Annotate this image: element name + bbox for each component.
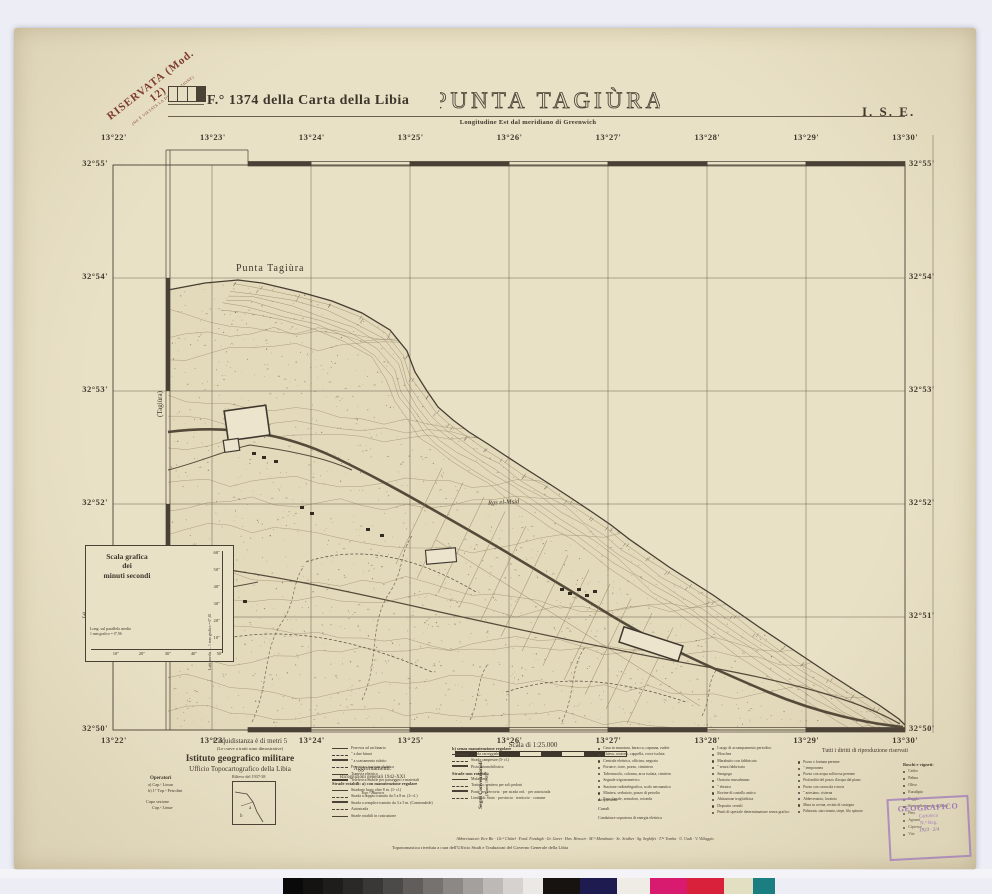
legend-powerlines: Condutture sopraterra di energia elettri… <box>598 816 662 820</box>
legend-entry-text: Abitazione trogloditica <box>717 797 753 802</box>
legend-entry-text: Olivo <box>908 783 917 789</box>
legend-point-symbol <box>798 811 800 813</box>
longitude-label: 13°22' <box>101 132 127 142</box>
latitude-label: 32°54' <box>909 271 941 281</box>
punta-tagiura-label: Punta Tagiùra <box>236 263 305 274</box>
legend-entry: ″ a scartamento ridotto <box>332 759 419 764</box>
legend-entry: Sinagoga <box>712 772 789 777</box>
legend-entry-text: Mulattiera <box>471 777 487 782</box>
legend-entry-text: Eucalipto <box>908 790 923 796</box>
legend-point-symbol <box>712 812 714 814</box>
legend-line-symbol <box>452 761 468 762</box>
latitude-label: 32°51' <box>909 610 941 620</box>
legend-point-symbol <box>712 760 714 762</box>
legend-unroads-title: Strade non rotabili: <box>452 771 489 776</box>
legend-point-symbol <box>598 748 600 750</box>
header-rule <box>168 116 905 117</box>
longitude-label: 13°24' <box>299 132 325 142</box>
legend-point-symbol <box>598 786 600 788</box>
legend-tree-symbol <box>903 771 905 773</box>
legend-entry: Cedro <box>903 769 948 775</box>
legend-tree-symbol <box>903 792 905 794</box>
legend-line-symbol <box>332 767 348 768</box>
legend-entry-text: Autostrada <box>351 807 368 812</box>
legend-entry-text: ″ temporanea <box>803 766 823 771</box>
index-cell <box>188 87 197 101</box>
scale-tick: 20" <box>139 651 145 656</box>
scale-tick: 40" <box>206 584 220 589</box>
legend-line-symbol <box>332 797 348 798</box>
legend-point-symbol <box>712 748 714 750</box>
legend-entry: ″ ebraico <box>712 785 789 790</box>
legend-entry: Palizzata, staccionata, siepe, filo spin… <box>798 809 863 814</box>
legend-roads-b-title: b) senza manutenzione regolare <box>452 746 511 751</box>
legend-entry: Strada carreggiabile (4ᵃ cl.) <box>452 752 514 757</box>
legend-roads-a: Stradone largo oltre 8 m. (1ᵃ cl.)Strada… <box>332 788 433 820</box>
legend-entry: Oratorio musulmano <box>712 778 789 783</box>
legend-entry: Marabutto con fabbricato <box>712 759 789 764</box>
legend-point-symbol <box>598 792 600 794</box>
calibration-gray-step <box>483 878 503 894</box>
svg-text:b: b <box>240 814 243 819</box>
legend-entry-text: ″ a due binari <box>351 752 372 757</box>
legend-entry: Abitazione trogloditica <box>712 797 789 802</box>
legend-entry: Ferrovia a trazione elettrica <box>332 765 419 770</box>
legend-woods-title: Boschi e vigneti: <box>903 762 934 767</box>
legend-entry: Abbeveratoio, lavatoio <box>798 797 863 802</box>
equidistance-note: L'equidistanza è di metri 5 <box>160 737 340 745</box>
legend-entry-text: Limiti di: Stato · provincia · territori… <box>471 796 545 801</box>
equidistance-subnote: (Le curve a tratti sono dimostrative) <box>160 746 340 751</box>
survey-date-label: Rilievo del 1937-38 <box>232 774 266 779</box>
legend-entry: Mura in rovina, recinti di sostegno <box>798 803 863 808</box>
calibration-gray-step <box>363 878 383 894</box>
legend-point-symbol <box>798 774 800 776</box>
legend-line-symbol <box>332 801 348 805</box>
longitude-label: 13°28' <box>695 132 721 142</box>
longitude-label: 13°26' <box>497 132 523 142</box>
legend-entry-text: Strada carreggiabile (4ᵃ cl.) <box>471 752 514 757</box>
legend-entry: Pozzo con carrucola e noria <box>798 785 863 790</box>
legend-entry: ″ senza fabbricato <box>712 765 789 770</box>
longitude-scale-label-1: Long. sul parallelo medio <box>90 626 131 631</box>
legend-point-symbol <box>712 805 714 807</box>
longitude-label: 13°22' <box>101 735 127 745</box>
legend-point-symbol <box>798 761 800 763</box>
sheet-reference: F.° 1374 della Carta della Libia <box>207 93 409 109</box>
legend-point-symbol <box>712 773 714 775</box>
legend-entry: Eucalipto <box>903 790 948 796</box>
legend-point-symbol <box>712 799 714 801</box>
legend-entry-text: Pozzo con acqua solforosa perenne <box>803 772 855 777</box>
institute-name: Istituto geografico militare <box>140 754 340 764</box>
legend-buildings: Casa in muratura, baracca, capanna, rude… <box>598 746 671 804</box>
legend-entry: Tramvia elettrica <box>332 772 419 777</box>
legend-entry: Strade rotabili in costruzione <box>332 814 433 819</box>
legend-entry-text: Ferrovia ad un binario <box>351 746 386 751</box>
calibration-gray-step <box>403 878 423 894</box>
scale-tick: 30" <box>165 651 171 656</box>
sheet-index-diagram <box>168 86 206 102</box>
legend-entry-text: Strada a semplice transito da 3 a 5 m. (… <box>351 801 433 806</box>
land-area <box>168 280 905 730</box>
scale-tick: 60" <box>206 550 220 555</box>
legend-tree-symbol <box>903 778 905 780</box>
legend-entry: Stradone largo oltre 8 m. (1ᵃ cl.) <box>332 788 433 793</box>
section-head-title: Capo sezione <box>146 799 169 804</box>
longitude-scale-ruler <box>91 649 223 650</box>
legend-entry: Deposito cereali <box>712 804 789 809</box>
index-cell <box>169 87 178 101</box>
legend-entry-text: Chiesa, oratorio, cappella, croce isolat… <box>603 752 664 757</box>
legend-line-symbol <box>332 816 348 817</box>
legend-line-symbol <box>332 755 348 756</box>
legend-entry-text: Sinagoga <box>717 772 731 777</box>
legend-entry: Casa in muratura, baracca, capanna, rude… <box>598 746 671 751</box>
legend-line-symbol <box>332 748 348 749</box>
legend-point-symbol <box>712 754 714 756</box>
legend-railways: Ferrovia ad un binario″ a due binari″ a … <box>332 746 419 785</box>
legend-entry: Fornace, torre, pozzo, ciminiera <box>598 765 671 770</box>
legend-entry-text: Ponti: per ferrovia · per strada ord. · … <box>471 790 550 795</box>
legend-entry: Olivo <box>903 783 948 789</box>
legend-entry-text: Moschea <box>717 752 731 757</box>
svg-text:a: a <box>249 806 252 811</box>
legend-entry-text: Stradone largo oltre 8 m. (1ᵃ cl.) <box>351 788 401 793</box>
legend-line-symbol <box>452 798 468 799</box>
legend-entry-text: Centrale elettrica, officina, negozio <box>603 759 658 764</box>
latitude-label: 32°53' <box>76 384 108 394</box>
legend-entry-text: ″ senza fabbricato <box>717 765 745 770</box>
longitude-label: 13°30' <box>892 132 918 142</box>
legend-entry-text: Profondità del pozzo d'acqua dal piano <box>803 778 860 783</box>
longitude-label: 13°27' <box>596 132 622 142</box>
legend-entry-text: ″ a scartamento ridotto <box>351 759 386 764</box>
abbreviations-line: Abbreviazioni: B.re Bir · Ch.ᵉᵗ Châtel ·… <box>300 836 870 841</box>
legend-line-symbol <box>452 786 468 787</box>
adjoining-sheet-label: (Tagiùra) <box>156 384 164 424</box>
latitude-label: 32°50' <box>909 723 941 733</box>
scale-tick: 50" <box>206 567 220 572</box>
scale-tick: 40" <box>191 651 197 656</box>
legend-entry-text: Tratturo, sentiero per soli pedoni <box>471 783 522 788</box>
legend-entry: Strada a semplice transito da 3 a 5 m. (… <box>332 801 433 806</box>
legend-entry: Pozzo con acqua solforosa perenne <box>798 772 863 777</box>
legend-entry-text: Strada a doppio transito da 5 a 8 m. (2ᵃ… <box>351 794 418 799</box>
calibration-color-patch <box>580 878 617 894</box>
calibration-gray-step <box>383 878 403 894</box>
legend-entry-text: Palma <box>908 776 918 782</box>
longitude-note: Longitudine Est dal meridiano di Greenwi… <box>408 119 648 126</box>
photo-mat-band <box>0 869 992 878</box>
legend-point-symbol <box>712 767 714 769</box>
operator-entry: b) 1° Top.ᵒ Petrolini <box>148 788 182 794</box>
scale-tick: 10" <box>113 651 119 656</box>
scale-title-3: minuti secondi <box>92 571 162 580</box>
fort-annex <box>223 438 240 452</box>
legend-entry-text: Segnale trigonometrico <box>603 778 639 783</box>
fort-enclosure <box>224 405 270 441</box>
photo-background: { "colors": { "photo_bg": "#edeef5", "pa… <box>0 0 992 894</box>
legend-entry-text: Pozzo o fontana perenne <box>803 760 839 765</box>
calibration-gray-step <box>443 878 463 894</box>
legend-entry: Ponti: per ferrovia · per strada ord. · … <box>452 790 550 795</box>
calibration-gray-step <box>323 878 343 894</box>
legend-entry: Pista automobilistica <box>452 765 514 770</box>
legend-point-symbol <box>798 786 800 788</box>
latitude-label: 32°53' <box>909 384 941 394</box>
calibration-gray-step <box>503 878 523 894</box>
legend-entry: Strada campestre (5ᵃ cl.) <box>452 758 514 763</box>
index-cell-current <box>197 87 205 101</box>
latitude-label: 32°54' <box>76 271 108 281</box>
legend-entry: Pozzo o fontana perenne <box>798 760 863 765</box>
legend-entry-text: Oratorio musulmano <box>717 778 749 783</box>
copyright-note: Tutti i diritti di riproduzione riservat… <box>770 748 960 754</box>
legend-entry: Tabernacolo, colonna, arca isolata, cimi… <box>598 772 671 777</box>
legend-entry-text: Marabutto con fabbricato <box>717 759 757 764</box>
scale-tick: 50" <box>217 651 223 656</box>
calibration-gray-step <box>343 878 363 894</box>
legend-point-symbol <box>712 780 714 782</box>
scale-tick: 10" <box>206 635 220 640</box>
legend-entry-text: Abbeveratoio, lavatoio <box>803 797 837 802</box>
library-stamp: GEOGRAFICO Cartoteca N.° Reg. 1923 · 2/4 <box>886 795 971 861</box>
legend-point-symbol <box>598 760 600 762</box>
survey-diagram: a b <box>232 781 276 825</box>
legend-entry-text: Tabernacolo, colonna, arca isolata, cimi… <box>603 772 671 777</box>
legend-point-symbol <box>598 773 600 775</box>
calibration-gray-step <box>523 878 543 894</box>
latitude-scale-ruler <box>222 551 223 653</box>
latitude-label: 32°55' <box>76 158 108 168</box>
legend-entry: Mulattiera <box>452 777 550 782</box>
calibration-strip <box>283 878 775 894</box>
legend-line-symbol <box>452 779 468 780</box>
legend-entry: Autostrada <box>332 807 433 812</box>
index-cell <box>178 87 187 101</box>
longitude-scale-label-2: 1 mm grafico = 0",96 <box>90 632 122 636</box>
index-diagram-scale <box>168 101 204 105</box>
legend-roads-b: Strada carreggiabile (4ᵃ cl.)Strada camp… <box>452 752 514 771</box>
longitude-label: 13°28' <box>695 735 721 745</box>
legend-entry-text: Rovine di castello antico <box>717 791 756 796</box>
legend-entry: Stazione radiotelegrafica, scalo aeronau… <box>598 785 671 790</box>
legend-entry: Punti di speciale determinazione senza g… <box>712 810 789 815</box>
scale-tick: 20" <box>206 618 220 623</box>
calibration-gray-step <box>283 878 303 894</box>
longitude-label: 13°25' <box>398 132 424 142</box>
scale-title-2: dei <box>92 561 162 570</box>
graphic-scale-title: Scala grafica dei minuti secondi <box>92 552 162 580</box>
legend-point-symbol <box>598 780 600 782</box>
longitude-label: 13°23' <box>200 132 226 142</box>
latitude-label: 32°50' <box>76 723 108 733</box>
legend-entry-text: Pozzo con carrucola e noria <box>803 785 844 790</box>
legend-point-symbol <box>798 804 800 806</box>
legend-line-symbol <box>332 809 348 810</box>
legend-entry-text: Luogo di accampamento periodico <box>717 746 771 751</box>
legend-aqueducts: Acquedotti <box>598 797 618 802</box>
scale-title-1: Scala grafica <box>92 552 162 561</box>
legend-line-symbol <box>452 765 468 769</box>
legend-line-symbol <box>332 774 348 775</box>
survey-diagram-sketch: a b <box>233 782 275 824</box>
calibration-color-patch <box>687 878 724 894</box>
legend-entry-text: Ferrovia a trazione elettrica <box>351 765 394 770</box>
latitude-label: 32°52' <box>909 497 941 507</box>
calibration-gray-step <box>423 878 443 894</box>
legend-tree-symbol <box>903 785 905 787</box>
legend-entry: Rovine di castello antico <box>712 791 789 796</box>
legend-entry: Strada a doppio transito da 5 a 8 m. (2ᵃ… <box>332 794 433 799</box>
legend-entry-text: Strada campestre (5ᵃ cl.) <box>471 758 509 763</box>
legend-cult-sites: Luogo di accampamento periodicoMoscheaMa… <box>712 746 789 817</box>
calibration-gray-step <box>463 878 483 894</box>
legend-entry-text: Stazione radiotelegrafica, scalo aeronau… <box>603 785 671 790</box>
legend-line-symbol <box>332 759 348 763</box>
legend-point-symbol <box>712 792 714 794</box>
legend-point-symbol <box>598 754 600 756</box>
legend-entry: Profondità del pozzo d'acqua dal piano <box>798 778 863 783</box>
latitude-scale-label: Latit. media — 1 mm grafico = 0",81 <box>208 644 212 670</box>
legend-entry: Segnale trigonometrico <box>598 778 671 783</box>
graphic-scale-box: Scala grafica dei minuti secondi Latit. … <box>85 545 234 662</box>
legend-line-symbol <box>332 790 348 791</box>
legend-entry-text: Mura in rovina, recinti di sostegno <box>803 803 854 808</box>
longitude-label: 13°30' <box>892 735 918 745</box>
legend-canals: Canali <box>598 806 609 811</box>
legend-entry-text: Palizzata, staccionata, siepe, filo spin… <box>803 809 863 814</box>
legend-roads-a-title: Strade rotabili: a) con manutenzione reg… <box>332 781 417 786</box>
legend-unroads: MulattieraTratturo, sentiero per soli pe… <box>452 777 550 803</box>
legend-entry: Tratturo, sentiero per soli pedoni <box>452 783 550 788</box>
legend-entry-text: Cedro <box>908 769 918 775</box>
legend-entry: Limiti di: Stato · provincia · territori… <box>452 796 550 801</box>
legend-entry: Chiesa, oratorio, cappella, croce isolat… <box>598 752 671 757</box>
legend-entry: ″ artesiano, cisterna <box>798 791 863 796</box>
operators-list: a) Cap.ᵉ Limarb) 1° Top.ᵒ Petrolini <box>148 782 182 793</box>
latitude-label: 32°52' <box>76 497 108 507</box>
legend-point-symbol <box>798 768 800 770</box>
map-title-svg: PUNTA TAGIÙRA <box>440 84 660 118</box>
latitude-label: 32°55' <box>909 158 941 168</box>
farm-enclosure <box>425 548 456 565</box>
legend-entry-text: Miniera, serbatoio, pozzo di petrolio <box>603 791 660 796</box>
longitude-label: 13°29' <box>793 735 819 745</box>
legend-entry: Ferrovia ad un binario <box>332 746 419 751</box>
legend-line-symbol <box>452 754 468 755</box>
calibration-color-patch <box>650 878 687 894</box>
legend-entry: ″ a due binari <box>332 752 419 757</box>
legend-entry: Palma <box>903 776 948 782</box>
legend-entry-text: Deposito cereali <box>717 804 742 809</box>
legend-entry: Centrale elettrica, officina, negozio <box>598 759 671 764</box>
legend-entry-text: Fornace, torre, pozzo, ciminiera <box>603 765 653 770</box>
scale-tick: 30" <box>206 601 220 606</box>
calibration-color-patch <box>617 878 650 894</box>
legend-entry-text: Tramvia elettrica <box>351 772 378 777</box>
legend-entry-text: Casa in muratura, baracca, capanna, rude… <box>603 746 669 751</box>
longitude-label: 13°25' <box>398 735 424 745</box>
legend-entry-text: Punti di speciale determinazione senza g… <box>717 810 789 815</box>
longitude-label: 13°29' <box>793 132 819 142</box>
quadrant-label: I. S. E. <box>862 104 915 120</box>
legend-point-symbol <box>798 780 800 782</box>
legend-point-symbol <box>598 767 600 769</box>
legend-line-symbol <box>452 790 468 794</box>
legend-point-symbol <box>798 798 800 800</box>
calibration-color-patch <box>543 878 580 894</box>
operators-title: Operatori <box>150 776 171 781</box>
legend-entry: Miniera, serbatoio, pozzo di petrolio <box>598 791 671 796</box>
legend-entry-text: ″ ebraico <box>717 785 731 790</box>
page-title: PUNTA TAGIÙRA <box>440 87 660 113</box>
legend-entry-text: ″ artesiano, cisterna <box>803 791 832 796</box>
legend-entry-text: Strade rotabili in costruzione <box>351 814 396 819</box>
calibration-color-patch <box>753 878 775 894</box>
legend-entry: ″ temporanea <box>798 766 863 771</box>
longitude-label: 13°27' <box>596 735 622 745</box>
legend-entry-text: Pista automobilistica <box>471 765 504 770</box>
calibration-gray-step <box>303 878 323 894</box>
legend-point-symbol <box>798 792 800 794</box>
section-head-name: Cap.ᵉ Limar <box>152 805 173 810</box>
legend-point-symbol <box>712 786 714 788</box>
toponymy-revision-note: Toponomastica riveduta a cura dell'Uffic… <box>260 845 700 850</box>
legend-wells: Pozzo o fontana perenne″ temporaneaPozzo… <box>798 760 863 815</box>
calibration-color-patch <box>724 878 753 894</box>
